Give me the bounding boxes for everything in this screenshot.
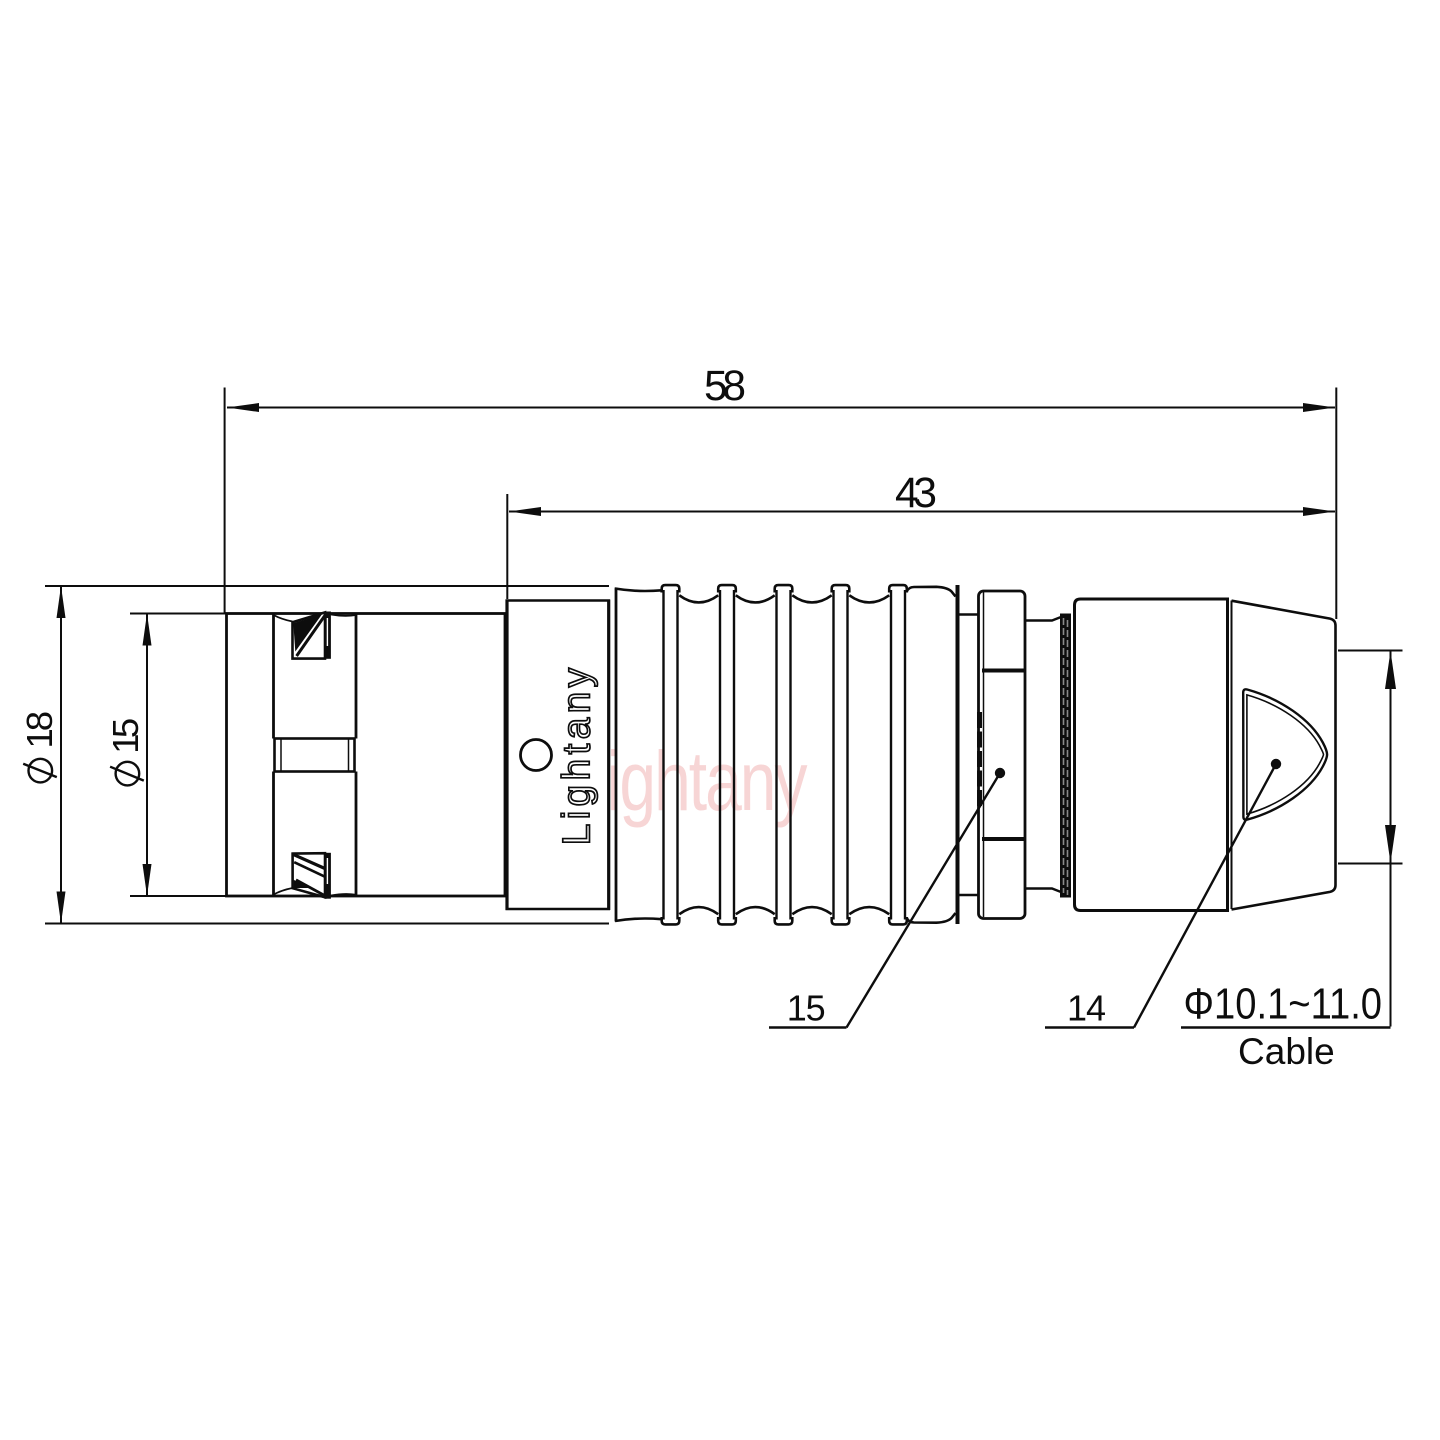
svg-text:43: 43 <box>895 470 937 517</box>
svg-text:Lightany: Lightany <box>556 664 599 846</box>
svg-text:58: 58 <box>704 363 746 410</box>
svg-text:Φ10.1~11.0: Φ10.1~11.0 <box>1184 981 1383 1029</box>
svg-text:15: 15 <box>105 718 146 754</box>
svg-text:18: 18 <box>19 711 60 749</box>
svg-text:15: 15 <box>787 988 826 1029</box>
svg-text:Cable: Cable <box>1238 1031 1335 1072</box>
svg-text:14: 14 <box>1067 988 1106 1029</box>
